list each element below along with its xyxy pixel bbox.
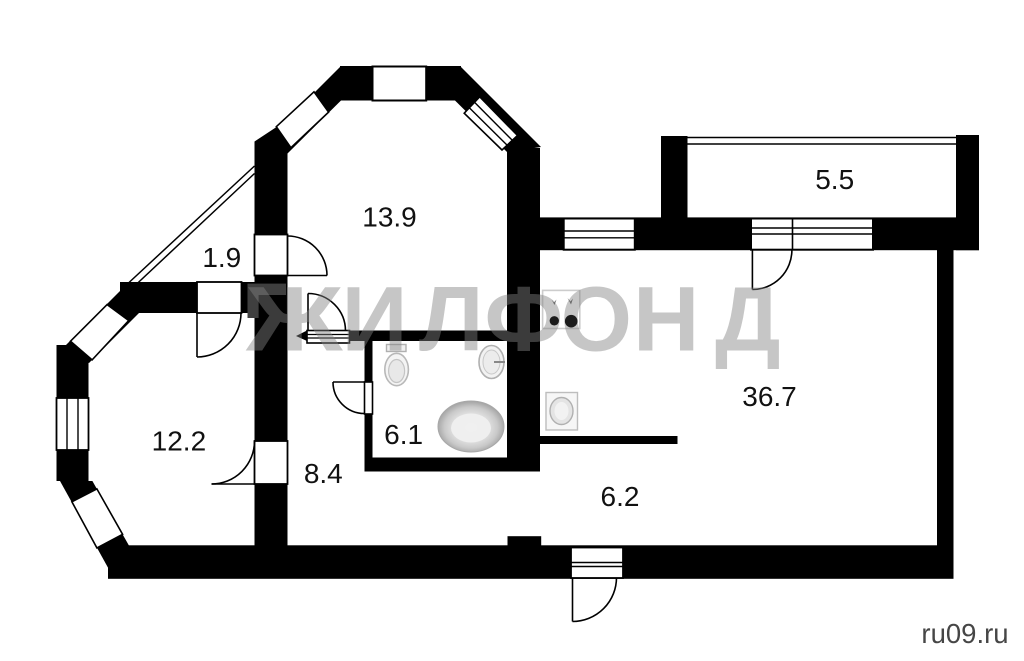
svg-text:5.5: 5.5 <box>815 164 854 195</box>
svg-text:13.9: 13.9 <box>362 202 417 233</box>
svg-text:1.9: 1.9 <box>202 242 241 273</box>
svg-text:Ж: Ж <box>245 268 344 370</box>
svg-text:ИЛФОНД: ИЛФОНД <box>342 269 781 371</box>
svg-text:36.7: 36.7 <box>742 381 797 412</box>
svg-text:8.4: 8.4 <box>304 458 343 489</box>
svg-text:6.2: 6.2 <box>601 481 640 512</box>
svg-text:6.1: 6.1 <box>384 419 423 450</box>
svg-text:ru09.ru: ru09.ru <box>921 618 1008 649</box>
svg-text:12.2: 12.2 <box>152 426 207 457</box>
